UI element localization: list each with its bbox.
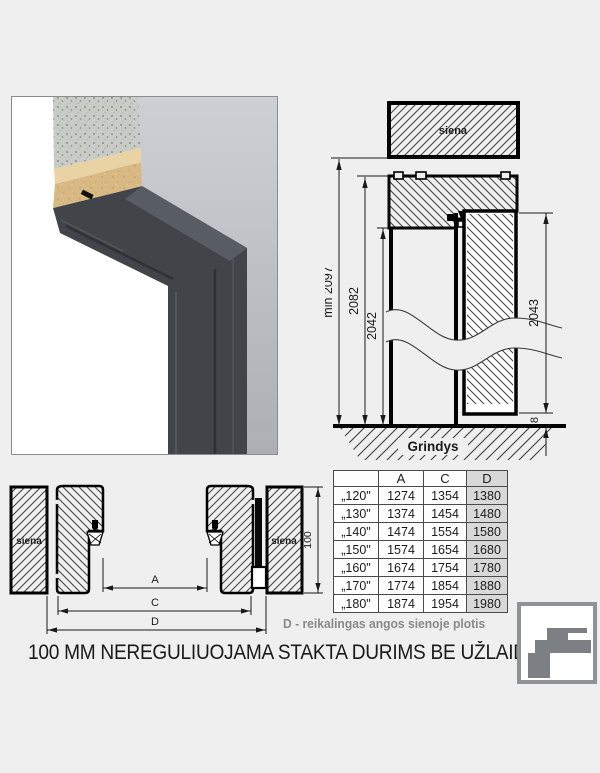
wall-label-right: siena: [271, 536, 297, 547]
header-d: D: [467, 471, 508, 487]
lock-striker: [252, 567, 266, 588]
cell-d: 1980: [467, 595, 508, 613]
dim-d-label: D: [151, 616, 159, 628]
cell-a: 1374: [379, 505, 424, 523]
left-jamb-profile: [55, 486, 103, 593]
dim-frame-outer-label: 2082: [347, 287, 361, 315]
cell-a: 1274: [379, 487, 424, 505]
table-header-row: A C D: [334, 471, 508, 487]
table-row: „130" 1374 1454 1480: [334, 505, 508, 523]
cell-a: 1674: [379, 559, 424, 577]
cell-c: 1354: [424, 487, 467, 505]
table-row: „170" 1774 1854 1880: [334, 577, 508, 595]
dim-a-label: A: [151, 574, 159, 586]
cell-d: 1580: [467, 523, 508, 541]
title-text: 100 MM NEREGULIUOJAMA STAKTA DURIMS BE U…: [28, 641, 554, 665]
cell-c: 1454: [424, 505, 467, 523]
door-edge: [255, 498, 262, 570]
cell-size: „130": [334, 505, 379, 523]
cell-c: 1654: [424, 541, 467, 559]
cell-a: 1574: [379, 541, 424, 559]
cell-d: 1680: [467, 541, 508, 559]
dim-door-label: 2043: [527, 299, 541, 327]
header-size: [334, 471, 379, 487]
cell-size: „160": [334, 559, 379, 577]
cell-a: 1774: [379, 577, 424, 595]
dim-total-min-label: min 2097: [325, 266, 335, 317]
dim-opening-label: 2042: [365, 312, 379, 340]
cell-size: „140": [334, 523, 379, 541]
door-frame-profile-logo: [517, 602, 597, 684]
frame-corner-photo: [11, 96, 278, 455]
horizontal-section-drawing: siena siena 100 A C D: [5, 480, 330, 640]
cell-size: „180": [334, 595, 379, 613]
table-row: „140" 1474 1554 1580: [334, 523, 508, 541]
cell-a: 1474: [379, 523, 424, 541]
cell-d: 1880: [467, 577, 508, 595]
dimensions-table: A C D „120" 1274 1354 1380 „130" 1374 14…: [333, 470, 508, 613]
cell-c: 1754: [424, 559, 467, 577]
cell-d: 1780: [467, 559, 508, 577]
cell-c: 1554: [424, 523, 467, 541]
table-row: „150" 1574 1654 1680: [334, 541, 508, 559]
cell-d: 1480: [467, 505, 508, 523]
dim-floor-gap-label: 8: [529, 417, 541, 423]
cell-size: „170": [334, 577, 379, 595]
dim-c-label: C: [151, 597, 159, 609]
cell-size: „120": [334, 487, 379, 505]
cell-d: 1380: [467, 487, 508, 505]
dim-frame-depth-label: 100: [302, 531, 314, 549]
header-c: C: [424, 471, 467, 487]
cell-c: 1954: [424, 595, 467, 613]
right-jamb-profile: [207, 486, 255, 593]
table-row: „180" 1874 1954 1980: [334, 595, 508, 613]
cell-c: 1854: [424, 577, 467, 595]
floor-label: Grindys: [407, 439, 458, 454]
header-a: A: [379, 471, 424, 487]
note-text: D - reikalingas angos sienoje plotis: [283, 616, 485, 631]
table-row: „120" 1274 1354 1380: [334, 487, 508, 505]
vertical-section-drawing: siena Grindys min 2097 208: [325, 95, 600, 470]
cell-a: 1874: [379, 595, 424, 613]
wall-label-left: siena: [16, 536, 42, 547]
wall-label: siena: [439, 125, 468, 137]
table-row: „160" 1674 1754 1780: [334, 559, 508, 577]
cell-size: „150": [334, 541, 379, 559]
